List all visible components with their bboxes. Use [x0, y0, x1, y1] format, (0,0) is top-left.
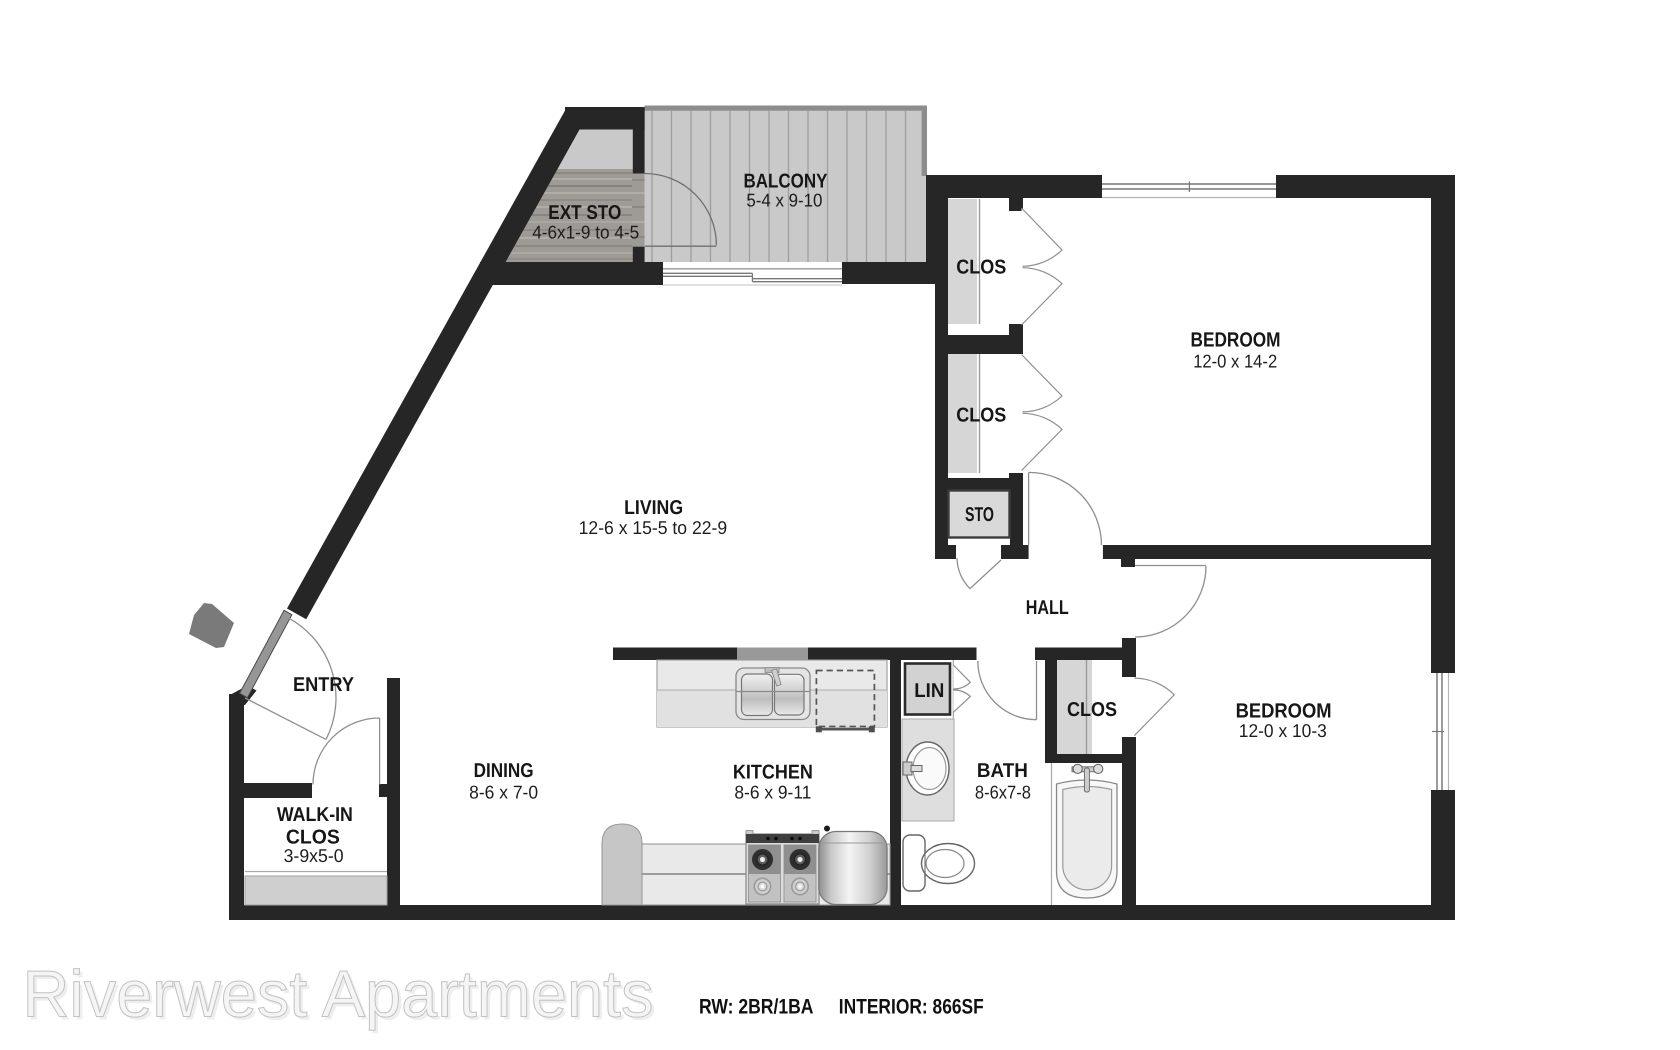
svg-text:LIN: LIN: [914, 680, 944, 702]
svg-text:ENTRY: ENTRY: [293, 674, 355, 696]
svg-text:4-6x1-9 to 4-5: 4-6x1-9 to 4-5: [532, 222, 639, 243]
svg-text:CLOS: CLOS: [956, 405, 1006, 427]
svg-text:BATH: BATH: [977, 760, 1028, 782]
svg-text:KITCHEN: KITCHEN: [733, 762, 813, 784]
svg-text:LIVING: LIVING: [624, 497, 683, 519]
svg-text:HALL: HALL: [1026, 597, 1069, 619]
svg-text:8-6 x 9-11: 8-6 x 9-11: [734, 782, 811, 803]
svg-text:8-6 x 7-0: 8-6 x 7-0: [469, 782, 538, 803]
svg-text:CLOS: CLOS: [1067, 699, 1117, 721]
svg-text:12-0 x 14-2: 12-0 x 14-2: [1193, 351, 1277, 372]
svg-text:WALK-IN: WALK-IN: [277, 804, 353, 826]
svg-text:Riverwest Apartments: Riverwest Apartments: [23, 957, 654, 1031]
svg-text:3-9x5-0: 3-9x5-0: [284, 845, 344, 866]
svg-text:8-6x7-8: 8-6x7-8: [975, 782, 1031, 803]
svg-text:CLOS: CLOS: [956, 257, 1006, 279]
svg-text:RW: 2BR/1BA: RW: 2BR/1BA: [699, 996, 814, 1019]
svg-text:INTERIOR: 866SF: INTERIOR: 866SF: [839, 996, 984, 1019]
svg-text:DINING: DINING: [474, 760, 534, 782]
svg-text:12-6 x 15-5 to 22-9: 12-6 x 15-5 to 22-9: [579, 517, 728, 538]
svg-text:5-4 x 9-10: 5-4 x 9-10: [746, 190, 822, 211]
svg-text:12-0 x 10-3: 12-0 x 10-3: [1239, 720, 1327, 741]
svg-text:BEDROOM: BEDROOM: [1191, 329, 1281, 352]
svg-text:STO: STO: [965, 504, 994, 526]
